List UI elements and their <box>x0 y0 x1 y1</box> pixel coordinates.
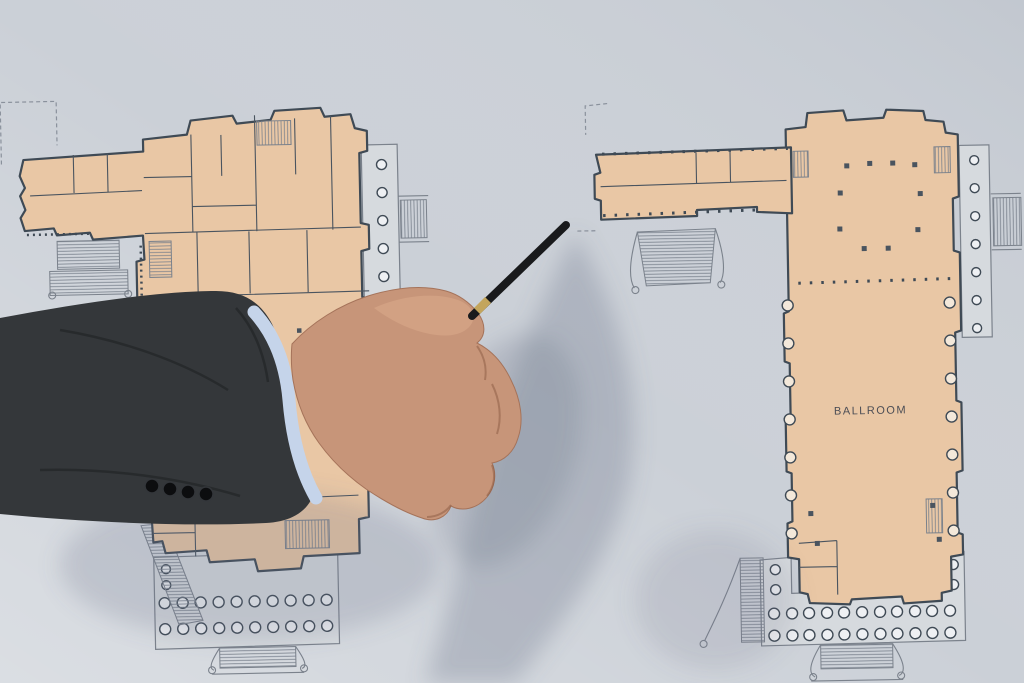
photo-stage: BALLROOM <box>0 0 1024 683</box>
scene: BALLROOM <box>0 0 1024 683</box>
left-plan-east-stair <box>400 200 427 239</box>
soft-floor-shadow <box>635 530 795 670</box>
presenter-arm <box>0 288 521 525</box>
right-plan-east-stair <box>993 197 1022 245</box>
ballroom-label: BALLROOM <box>834 404 907 417</box>
south-grand-stair <box>821 644 893 669</box>
south-grand-stair <box>220 646 296 668</box>
